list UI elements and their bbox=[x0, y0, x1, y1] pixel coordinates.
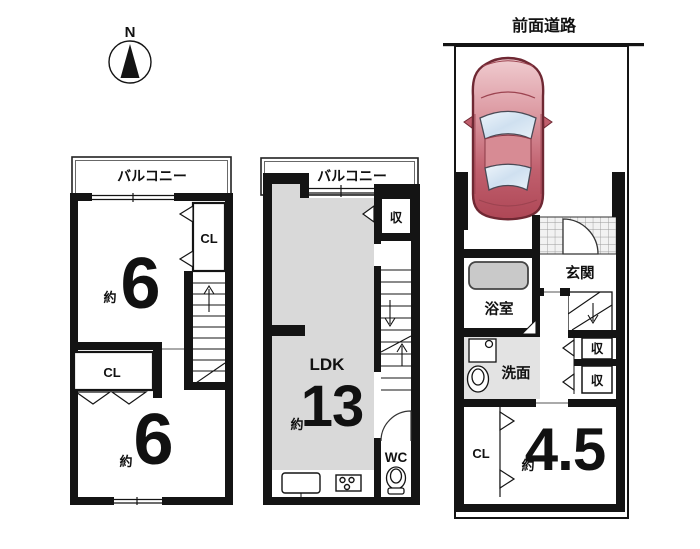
bathtub-icon bbox=[469, 262, 528, 289]
wc-label: WC bbox=[385, 450, 408, 465]
ldk-size: 13 bbox=[301, 374, 364, 439]
window-3f-top bbox=[92, 193, 174, 203]
plan-1f: 前面道路 bbox=[443, 16, 644, 518]
front-road-label: 前面道路 bbox=[512, 16, 577, 35]
washbasin-icon bbox=[469, 339, 496, 362]
closet-1f-label: CL bbox=[472, 446, 489, 461]
closet-door-icon bbox=[500, 470, 514, 488]
car-roof bbox=[485, 135, 531, 168]
sink-icon bbox=[282, 473, 320, 493]
closet-3f-lower-label: CL bbox=[103, 365, 120, 380]
storage-1f-lower-label: 収 bbox=[591, 373, 604, 388]
plan-2f: バルコニー 収 bbox=[261, 158, 420, 505]
toilet-icon bbox=[387, 467, 406, 494]
stairs-1f-icon bbox=[568, 292, 612, 332]
washroom-label: 洗面 bbox=[502, 364, 531, 382]
floor-plan-svg: N バルコニー CL bbox=[0, 0, 700, 549]
room-3f-lower-approx: 約 bbox=[119, 454, 132, 469]
closet-door-icon bbox=[500, 412, 514, 430]
window-3f-bottom bbox=[114, 497, 162, 506]
plan-3f: バルコニー CL CL bbox=[70, 157, 233, 506]
entrance-label: 玄関 bbox=[566, 264, 595, 282]
room-3f-upper-size: 6 bbox=[120, 244, 159, 324]
compass-north-label: N bbox=[125, 24, 136, 41]
compass-icon: N bbox=[109, 24, 151, 83]
car-illustration bbox=[464, 58, 552, 219]
room-1f-size: 4.5 bbox=[525, 416, 605, 483]
north-arrow-icon bbox=[121, 44, 140, 78]
door-arc-2f-icon bbox=[381, 411, 411, 441]
room-3f-upper-approx: 約 bbox=[103, 290, 116, 305]
room-3f-lower-size: 6 bbox=[133, 400, 172, 480]
balcony-3f-label: バルコニー bbox=[117, 168, 187, 184]
storage-1f-upper-label: 収 bbox=[591, 341, 604, 356]
bath-door-icon bbox=[522, 320, 536, 334]
car-mirror-icon bbox=[464, 116, 473, 128]
kitchen-icons bbox=[282, 473, 361, 497]
floor-plan-image: N バルコニー CL bbox=[0, 0, 700, 549]
balcony-2f-label: バルコニー bbox=[317, 168, 387, 184]
closet-3f-upper-label: CL bbox=[200, 231, 217, 246]
stairs-2f-icon bbox=[381, 270, 411, 390]
car-mirror-icon bbox=[543, 116, 552, 128]
toilet-1f-icon bbox=[468, 366, 489, 392]
storage-2f-label: 収 bbox=[390, 210, 403, 225]
ldk-label: LDK bbox=[310, 355, 346, 374]
bathroom-label: 浴室 bbox=[485, 300, 514, 318]
